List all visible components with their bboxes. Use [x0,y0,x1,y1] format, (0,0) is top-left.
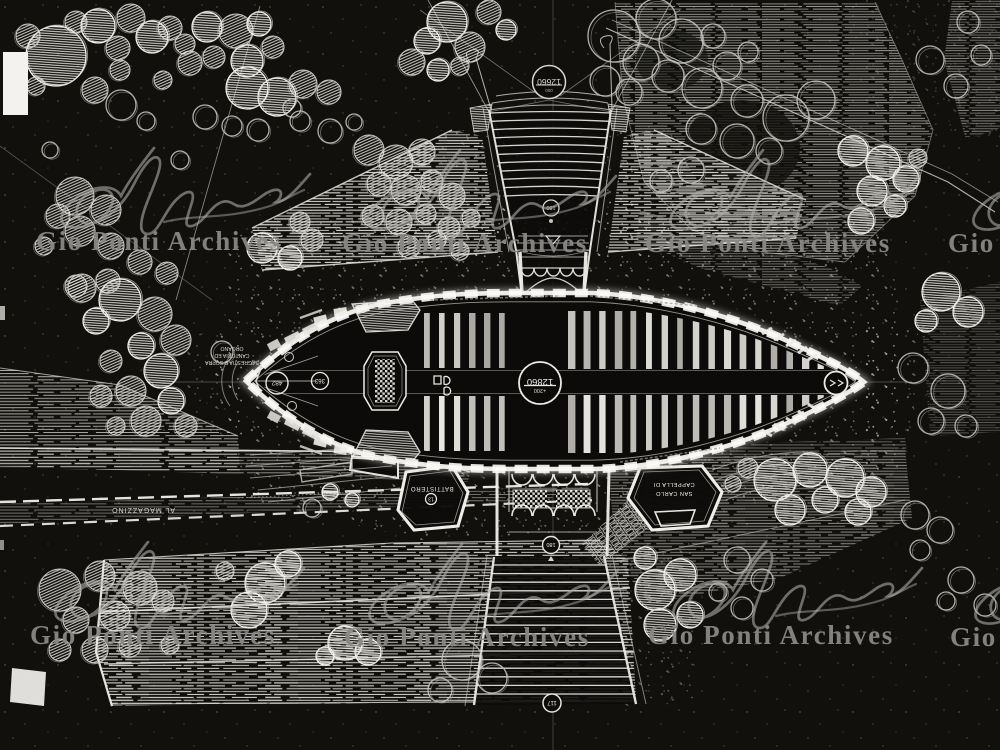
svg-text:+200: +200 [534,387,546,393]
svg-text:CAPPELLA DI: CAPPELLA DI [653,481,694,487]
svg-text:SAGRESTIA E SOPRA: SAGRESTIA E SOPRA [205,359,259,365]
svg-text:SAN CARLO: SAN CARLO [655,490,692,496]
svg-text:180: 180 [546,541,555,547]
svg-text:482: 482 [271,379,282,386]
svg-text:BATTISTERO: BATTISTERO [410,485,453,491]
svg-text:117: 117 [547,699,557,705]
svg-text:13: 13 [428,496,434,502]
svg-text:363: 363 [314,377,325,383]
svg-text:000: 000 [545,88,553,93]
svg-text:AL MAGAZZINO: AL MAGAZZINO [111,506,175,513]
